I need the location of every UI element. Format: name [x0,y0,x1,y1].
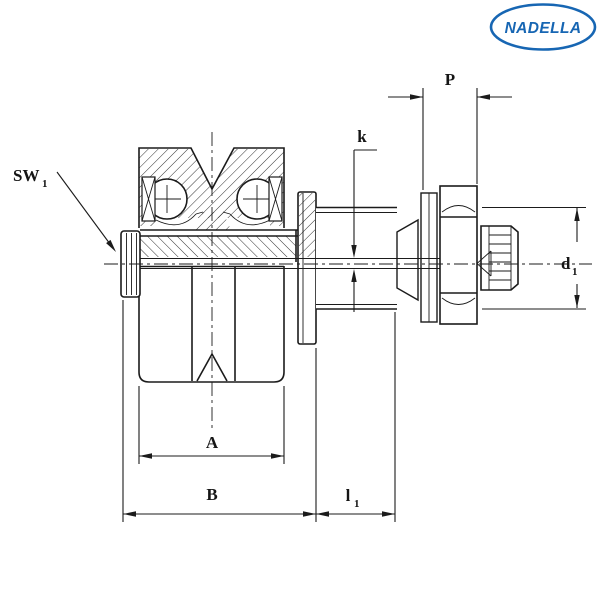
logo-text: NADELLA [505,20,582,37]
dim-l1: l 1 [316,312,395,522]
nadella-logo: NADELLA [491,5,595,50]
seal-right [269,177,282,221]
thread-runout [397,220,418,300]
inner-ring-hatch [140,236,296,257]
technical-drawing: P k SW 1 A B l 1 [0,0,600,600]
seal-left [142,177,155,221]
dim-label-l1: l [346,486,351,505]
dim-a: A [139,386,284,464]
leader-sw1: SW 1 [13,166,116,252]
drawing-canvas: P k SW 1 A B l 1 [0,0,600,600]
dim-label-k: k [357,127,367,146]
dim-label-a: A [206,433,219,452]
threaded-end [481,226,518,290]
dim-label-d1-sub: 1 [572,266,578,278]
dim-label-sw1-sub: 1 [42,178,48,190]
hex-nut [440,186,477,324]
roller-view-bottom [139,266,284,382]
dim-label-p: P [445,70,455,89]
dim-label-d1: d [561,254,571,273]
dim-label-sw1: SW [13,166,39,185]
flange-hatch [299,193,315,257]
flange-collar [298,192,316,344]
dim-p: P [388,70,512,190]
roller-section-top [139,148,298,262]
dim-label-b: B [206,485,217,504]
dim-label-l1-sub: 1 [354,498,360,510]
washer [421,193,437,322]
